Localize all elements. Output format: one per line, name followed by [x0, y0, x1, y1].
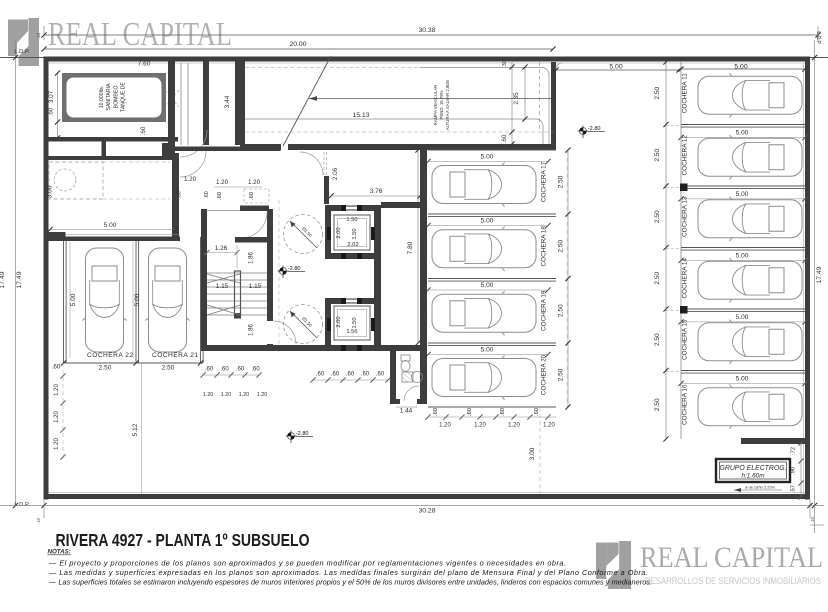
svg-text:5.00: 5.00: [481, 347, 494, 354]
svg-text:RIVERA 4927 - PLANTA 1º SUBSUE: RIVERA 4927 - PLANTA 1º SUBSUELO: [56, 530, 310, 550]
svg-text:2.06: 2.06: [332, 167, 339, 180]
svg-text:2.35: 2.35: [513, 92, 520, 105]
svg-text:3.00: 3.00: [529, 447, 536, 460]
svg-text:— Las medidas y superficies ex: — Las medidas y superficies expresadas e…: [48, 568, 648, 577]
svg-text:5.00: 5.00: [481, 154, 494, 161]
svg-text:1.20: 1.20: [543, 423, 555, 429]
svg-text:.60: .60: [376, 372, 385, 378]
svg-text:1.56: 1.56: [346, 329, 357, 335]
svg-text:1.26: 1.26: [215, 245, 228, 252]
svg-text:2.50: 2.50: [654, 398, 661, 411]
svg-text:30.28: 30.28: [418, 508, 435, 515]
svg-text:5.12: 5.12: [132, 423, 139, 436]
svg-text:2.50: 2.50: [654, 149, 661, 162]
svg-text:.60: .60: [48, 107, 55, 116]
svg-text:— Las superficies totales se e: — Las superficies totales se estimaron i…: [48, 578, 652, 587]
svg-text:2.50: 2.50: [162, 365, 175, 372]
svg-text:.60: .60: [205, 367, 214, 373]
svg-text:1.20: 1.20: [439, 423, 451, 429]
svg-text:1.20: 1.20: [216, 179, 229, 186]
svg-text:.60: .60: [361, 372, 370, 378]
svg-text:RAMPA VEHICULAR: RAMPA VEHICULAR: [433, 85, 438, 126]
svg-text:2.50: 2.50: [654, 87, 661, 100]
svg-text:.60: .60: [217, 192, 223, 200]
svg-text:COCHERA 15: COCHERA 15: [682, 319, 689, 360]
svg-text:.90: .90: [791, 467, 797, 475]
svg-text:1.20: 1.20: [203, 392, 214, 398]
svg-text:2.50: 2.50: [654, 210, 661, 223]
svg-text:SANITARIA: SANITARIA: [106, 83, 112, 111]
svg-text:1.20: 1.20: [184, 176, 197, 183]
svg-text:ALTURA A SALVAR 2,80m: ALTURA A SALVAR 2,80m: [445, 79, 450, 130]
svg-text:.60: .60: [204, 191, 210, 199]
svg-text:COCHERA 11: COCHERA 11: [682, 73, 689, 113]
svg-text:ø de caño 2.20m: ø de caño 2.20m: [745, 485, 776, 490]
svg-text:1.20: 1.20: [54, 384, 60, 396]
svg-text:.30: .30: [502, 60, 508, 67]
svg-text:.13: .13: [36, 32, 41, 39]
svg-text:2.02: 2.02: [347, 242, 358, 248]
svg-text:COCHERA 19: COCHERA 19: [541, 290, 548, 331]
svg-text:5.00: 5.00: [481, 282, 494, 289]
svg-text:1.50: 1.50: [352, 317, 358, 328]
svg-text:NOTAS:: NOTAS:: [48, 549, 71, 556]
svg-text:15.13: 15.13: [352, 112, 369, 119]
svg-text:1.15: 1.15: [249, 283, 262, 290]
svg-text:.60: .60: [346, 372, 355, 378]
svg-text:2.50: 2.50: [654, 272, 661, 285]
svg-text:COCHERA 22: COCHERA 22: [87, 352, 133, 359]
svg-text:.60: .60: [534, 408, 540, 416]
svg-text:10.000lts.: 10.000lts.: [99, 86, 105, 109]
svg-text:COCHERA 20: COCHERA 20: [541, 354, 548, 395]
svg-text:L.D.P.: L.D.P.: [14, 49, 30, 55]
svg-text:-2.80: -2.80: [588, 126, 601, 132]
svg-text:30.38: 30.38: [418, 27, 435, 34]
svg-text:1.20: 1.20: [508, 423, 520, 429]
svg-text:2.50: 2.50: [558, 240, 565, 253]
svg-text:1.86: 1.86: [249, 324, 255, 336]
svg-text:.60: .60: [501, 134, 508, 143]
svg-text:.10: .10: [36, 517, 41, 524]
svg-text:1.44: 1.44: [400, 408, 413, 415]
svg-text:5.00: 5.00: [104, 222, 117, 229]
svg-text:17.49: 17.49: [816, 266, 823, 283]
svg-text:h:1.60m: h:1.60m: [741, 473, 765, 480]
svg-text:.60: .60: [251, 367, 260, 373]
svg-text:1.50: 1.50: [352, 228, 358, 239]
svg-text:5.00: 5.00: [736, 375, 749, 382]
svg-text:7.80: 7.80: [407, 241, 414, 254]
svg-text:COCHERA 16: COCHERA 16: [682, 384, 689, 425]
svg-text:5.00: 5.00: [134, 293, 141, 306]
svg-text:5.00: 5.00: [736, 191, 749, 198]
svg-text:DESARROLLOS DE SERVICIOS INMOB: DESARROLLOS DE SERVICIOS INMOBILIARIOS: [645, 576, 821, 586]
svg-text:1.20: 1.20: [474, 423, 486, 429]
svg-text:1.15: 1.15: [216, 283, 229, 290]
svg-text:.60: .60: [249, 192, 255, 200]
svg-text:2.50: 2.50: [558, 175, 565, 188]
svg-text:.60: .60: [236, 367, 245, 373]
svg-text:-2.80: -2.80: [288, 266, 301, 272]
svg-text:7.60: 7.60: [138, 61, 151, 68]
svg-text:20.00: 20.00: [289, 41, 306, 48]
svg-text:.60: .60: [500, 408, 506, 416]
svg-text:.60: .60: [316, 372, 325, 378]
svg-text:COCHERA 18: COCHERA 18: [541, 226, 548, 267]
svg-text:COCHERA 14: COCHERA 14: [682, 258, 689, 299]
svg-text:.60: .60: [331, 372, 340, 378]
svg-text:2.00: 2.00: [336, 316, 342, 327]
svg-text:2.50: 2.50: [654, 333, 661, 346]
svg-text:.60: .60: [220, 367, 229, 373]
svg-text:.60: .60: [467, 408, 473, 416]
svg-text:5.00: 5.00: [736, 314, 749, 321]
svg-text:5.00: 5.00: [481, 218, 494, 225]
svg-text:2.50: 2.50: [558, 304, 565, 317]
svg-text:.60: .60: [433, 408, 439, 416]
svg-text:3.76: 3.76: [370, 188, 383, 195]
svg-text:COCHERA 17: COCHERA 17: [541, 161, 548, 202]
svg-text:TANQUE DE: TANQUE DE: [121, 82, 127, 112]
svg-text:BOMBEO: BOMBEO: [113, 86, 119, 109]
svg-text:1.50: 1.50: [346, 217, 357, 223]
svg-text:17.49: 17.49: [16, 271, 23, 288]
svg-text:.60: .60: [52, 364, 61, 371]
svg-text:.10: .10: [810, 516, 815, 523]
svg-text:PEND. 15,76%: PEND. 15,76%: [439, 90, 444, 119]
svg-text:REAL CAPITAL: REAL CAPITAL: [48, 16, 232, 53]
svg-text:2.50: 2.50: [99, 365, 112, 372]
svg-text:1.20: 1.20: [239, 392, 250, 398]
svg-text:17.49: 17.49: [0, 271, 6, 288]
svg-text:1.20: 1.20: [248, 179, 261, 186]
svg-text:.57: .57: [791, 485, 797, 493]
svg-text:COCHERA 13: COCHERA 13: [682, 196, 689, 237]
svg-text:REAL CAPITAL: REAL CAPITAL: [640, 541, 823, 574]
svg-text:— El proyecto y proporciones d: — El proyecto y proporciones de los plan…: [48, 559, 566, 568]
svg-text:COCHERA 21: COCHERA 21: [152, 352, 198, 359]
svg-text:-2.80: -2.80: [296, 431, 309, 437]
svg-text:.60: .60: [140, 126, 147, 135]
svg-text:1.20: 1.20: [257, 392, 268, 398]
svg-text:COCHERA 12: COCHERA 12: [682, 135, 689, 176]
svg-text:5.00: 5.00: [736, 252, 749, 259]
svg-text:1.20: 1.20: [54, 411, 60, 423]
svg-text:1.86: 1.86: [249, 252, 255, 264]
svg-text:2.00: 2.00: [336, 227, 342, 238]
svg-text:5.00: 5.00: [736, 129, 749, 136]
svg-text:5.00: 5.00: [609, 64, 622, 71]
svg-text:.60: .60: [177, 191, 183, 199]
svg-text:L.D.P.: L.D.P.: [815, 31, 821, 44]
svg-text:3.00: 3.00: [47, 185, 54, 198]
svg-text:2.50: 2.50: [558, 368, 565, 381]
svg-text:.72: .72: [791, 447, 797, 455]
svg-text:5.00: 5.00: [70, 293, 77, 306]
svg-text:5.00: 5.00: [734, 64, 747, 71]
svg-text:1.20: 1.20: [221, 392, 232, 398]
svg-text:1.20: 1.20: [54, 438, 60, 450]
svg-text:GRUPO ELECTROG.: GRUPO ELECTROG.: [719, 465, 786, 472]
svg-text:3.07: 3.07: [48, 90, 55, 103]
svg-text:3.44: 3.44: [224, 95, 231, 108]
